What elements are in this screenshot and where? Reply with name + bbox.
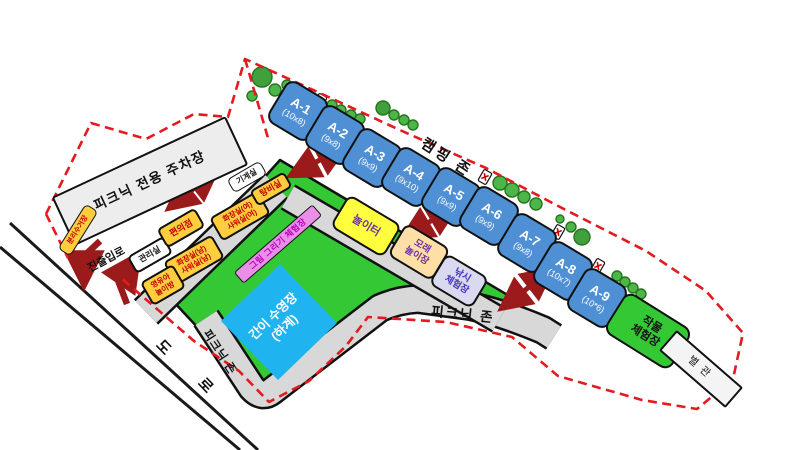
site-map-base-layer [0,0,800,450]
playground-label: 놀이터 [350,213,382,239]
campground-site-map: 피크닉 전용 주차장 분리수거장 관리실 편의점 화장실(남) 샤워실(남) 영… [0,0,800,450]
